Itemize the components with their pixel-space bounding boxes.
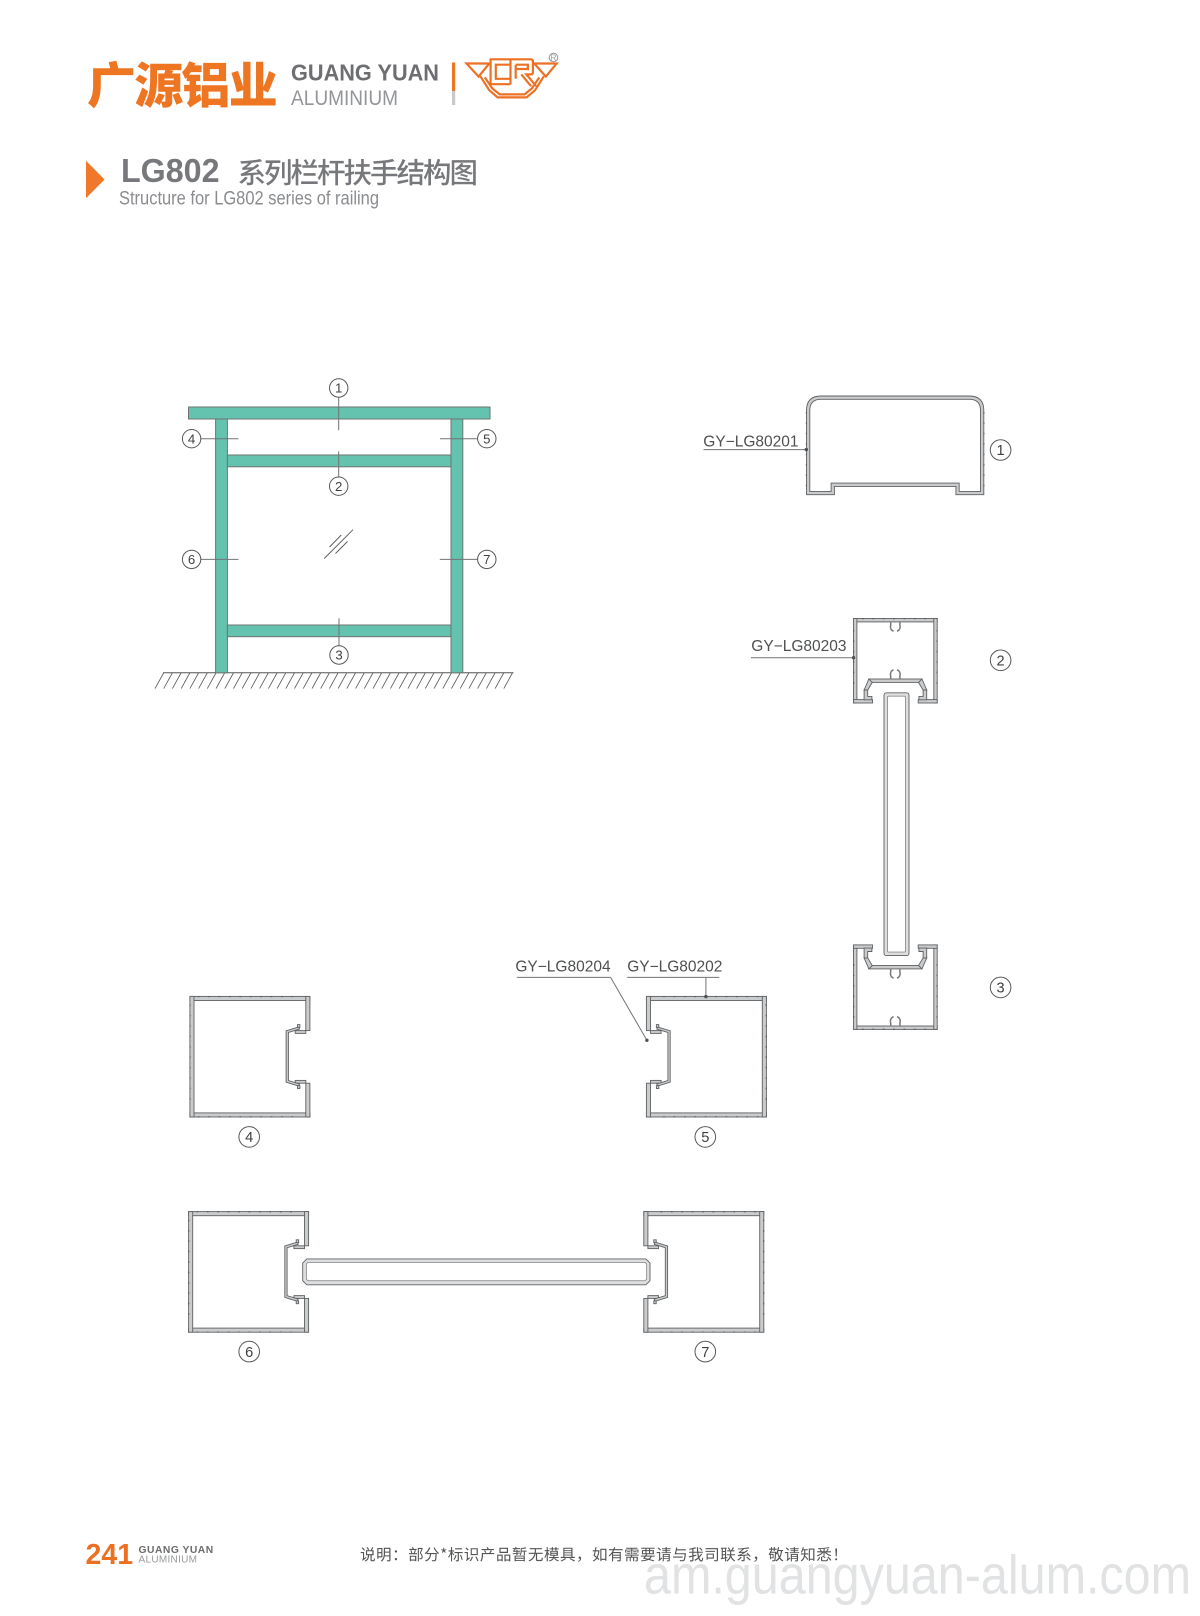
- svg-text:ALUMINIUM: ALUMINIUM: [139, 1555, 198, 1566]
- svg-text:GY−LG80203: GY−LG80203: [751, 638, 846, 655]
- svg-text:7: 7: [701, 1345, 709, 1361]
- svg-text:GY−LG80202: GY−LG80202: [627, 959, 722, 976]
- svg-text:GY−LG80201: GY−LG80201: [703, 433, 798, 450]
- svg-text:7: 7: [483, 552, 490, 567]
- svg-text:1: 1: [335, 381, 342, 396]
- svg-text:GUANG YUAN: GUANG YUAN: [291, 59, 439, 85]
- svg-text:5: 5: [483, 431, 490, 446]
- svg-text:6: 6: [245, 1345, 253, 1361]
- svg-text:4: 4: [188, 431, 195, 446]
- svg-text:R: R: [551, 53, 557, 62]
- svg-text:ALUMINIUM: ALUMINIUM: [291, 86, 398, 110]
- svg-text:Structure for LG802 series of: Structure for LG802 series of railing: [119, 188, 379, 209]
- svg-text:4: 4: [245, 1130, 253, 1146]
- svg-text:5: 5: [701, 1130, 709, 1146]
- svg-text:LG802: LG802: [121, 153, 220, 190]
- svg-text:GY−LG80204: GY−LG80204: [515, 959, 611, 976]
- svg-text:6: 6: [188, 552, 195, 567]
- svg-text:3: 3: [997, 981, 1005, 997]
- svg-text:2: 2: [997, 654, 1005, 670]
- svg-text:3: 3: [335, 648, 342, 663]
- svg-text:2: 2: [335, 479, 342, 494]
- svg-text:1: 1: [997, 443, 1005, 459]
- svg-text:241: 241: [86, 1539, 134, 1571]
